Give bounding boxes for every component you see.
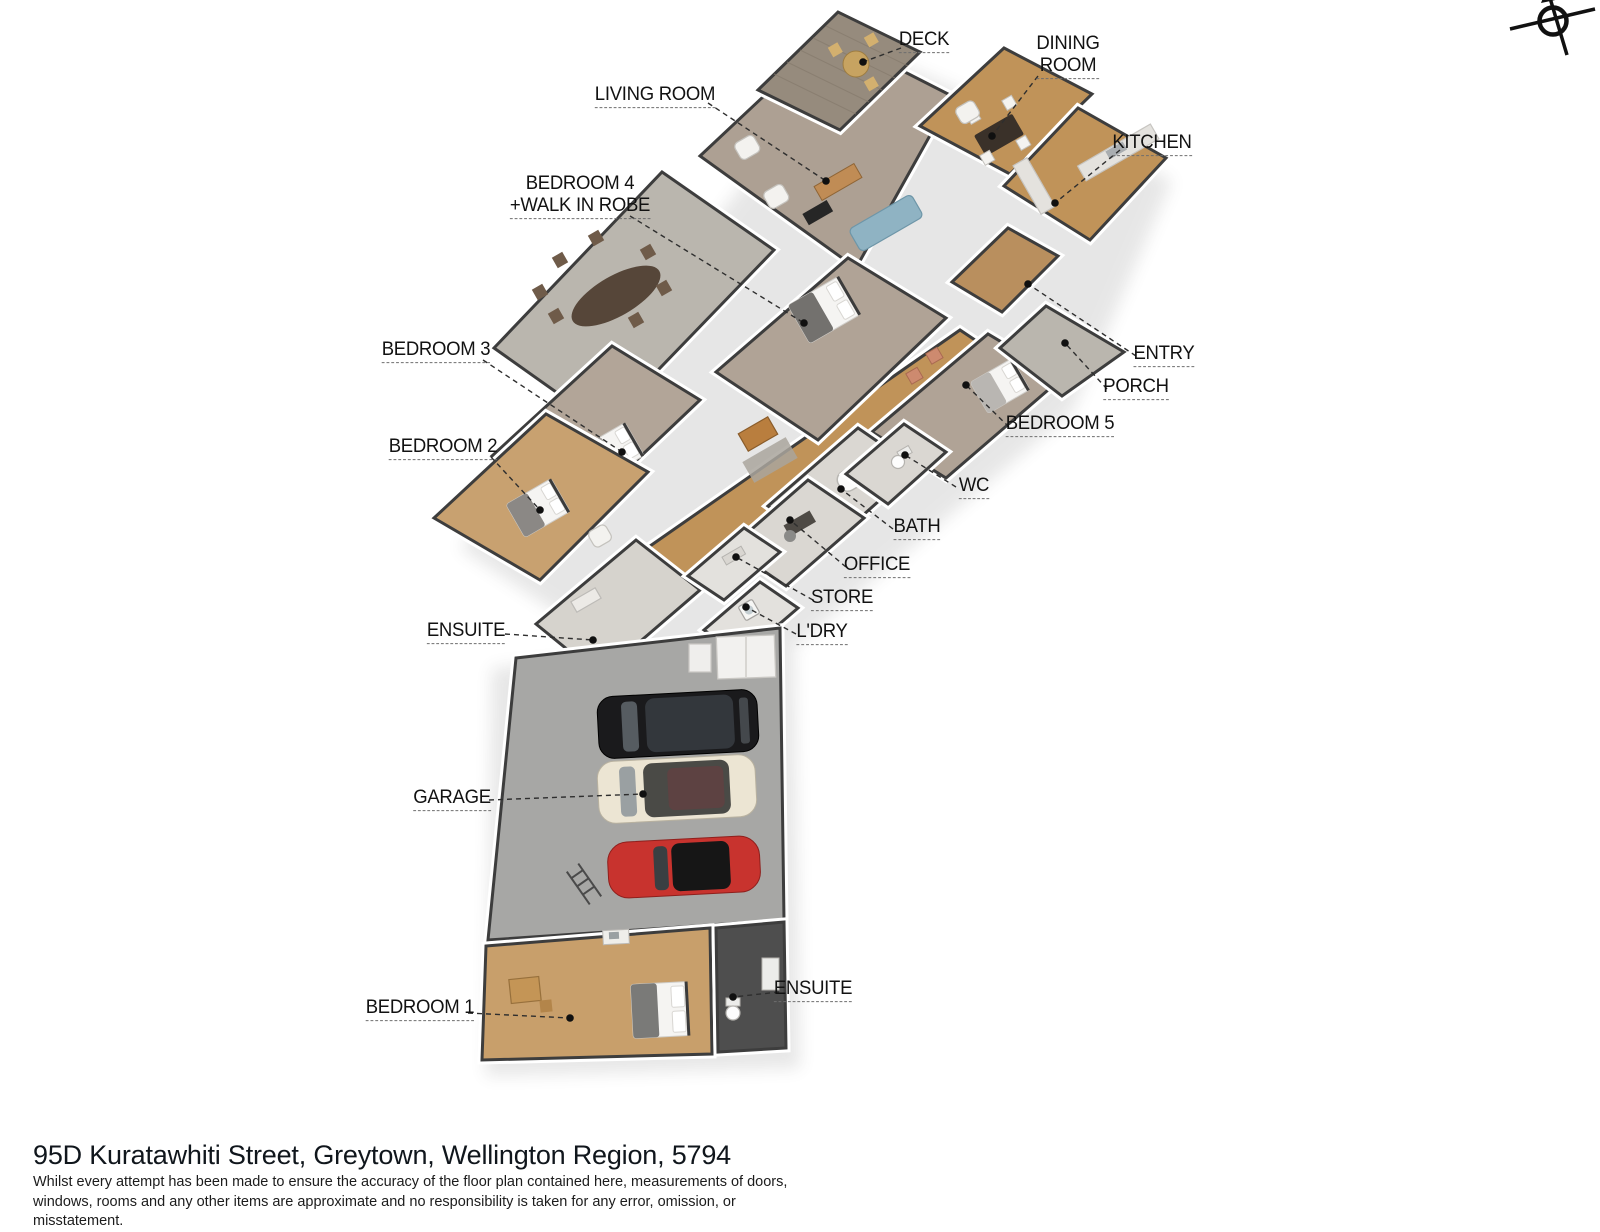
disclaimer-text: Whilst every attempt has been made to en… [33, 1173, 808, 1232]
car-red-sports [607, 835, 762, 899]
leader-dot-dining-room [988, 132, 996, 140]
leader-dot-deck [859, 58, 867, 66]
garage-cabinet [689, 644, 711, 672]
compass-north-icon [1510, 0, 1595, 55]
floorplan-page: DECKDININGROOMLIVING ROOMBEDROOM 4+WALK … [0, 0, 1600, 1200]
vanity [762, 958, 779, 990]
leader-dot-office [786, 516, 794, 524]
leader-dot-store [732, 553, 740, 561]
leader-dot-bedroom-4-walk-in-robe [800, 319, 808, 327]
leader-dot-porch [1061, 339, 1069, 347]
leader-dot-entry [1024, 280, 1032, 288]
leader-dot-wc [901, 451, 909, 459]
office-chair [784, 530, 796, 542]
desk-chair [539, 999, 552, 1012]
address-title: 95D Kuratawhiti Street, Greytown, Wellin… [33, 1140, 731, 1171]
leader-dot-garage [639, 790, 647, 798]
room-ensuite-lower [716, 922, 786, 1052]
leader-dot-bedroom-2 [536, 506, 544, 514]
sink [609, 932, 619, 940]
floor-plan-rendering [0, 0, 1600, 1200]
leader-dot-kitchen [1051, 199, 1059, 207]
leader-dot-living-room [822, 177, 830, 185]
room-bedroom-1 [482, 928, 712, 1060]
toilet [726, 998, 740, 1020]
bed [631, 982, 691, 1039]
leader-dot-ensuite-lower [729, 993, 737, 1001]
leader-dot-ensuite-upper [589, 636, 597, 644]
car-cream-van [596, 754, 757, 824]
room-garage [488, 628, 784, 940]
leader-dot-bedroom-3 [618, 448, 626, 456]
leader-dot-bath [837, 485, 845, 493]
desk [509, 976, 541, 1003]
leader-dot-bedroom-5 [962, 381, 970, 389]
car-black-suv [596, 689, 759, 759]
leader-dot-laundry [742, 603, 750, 611]
leader-dot-bedroom-1 [566, 1014, 574, 1022]
